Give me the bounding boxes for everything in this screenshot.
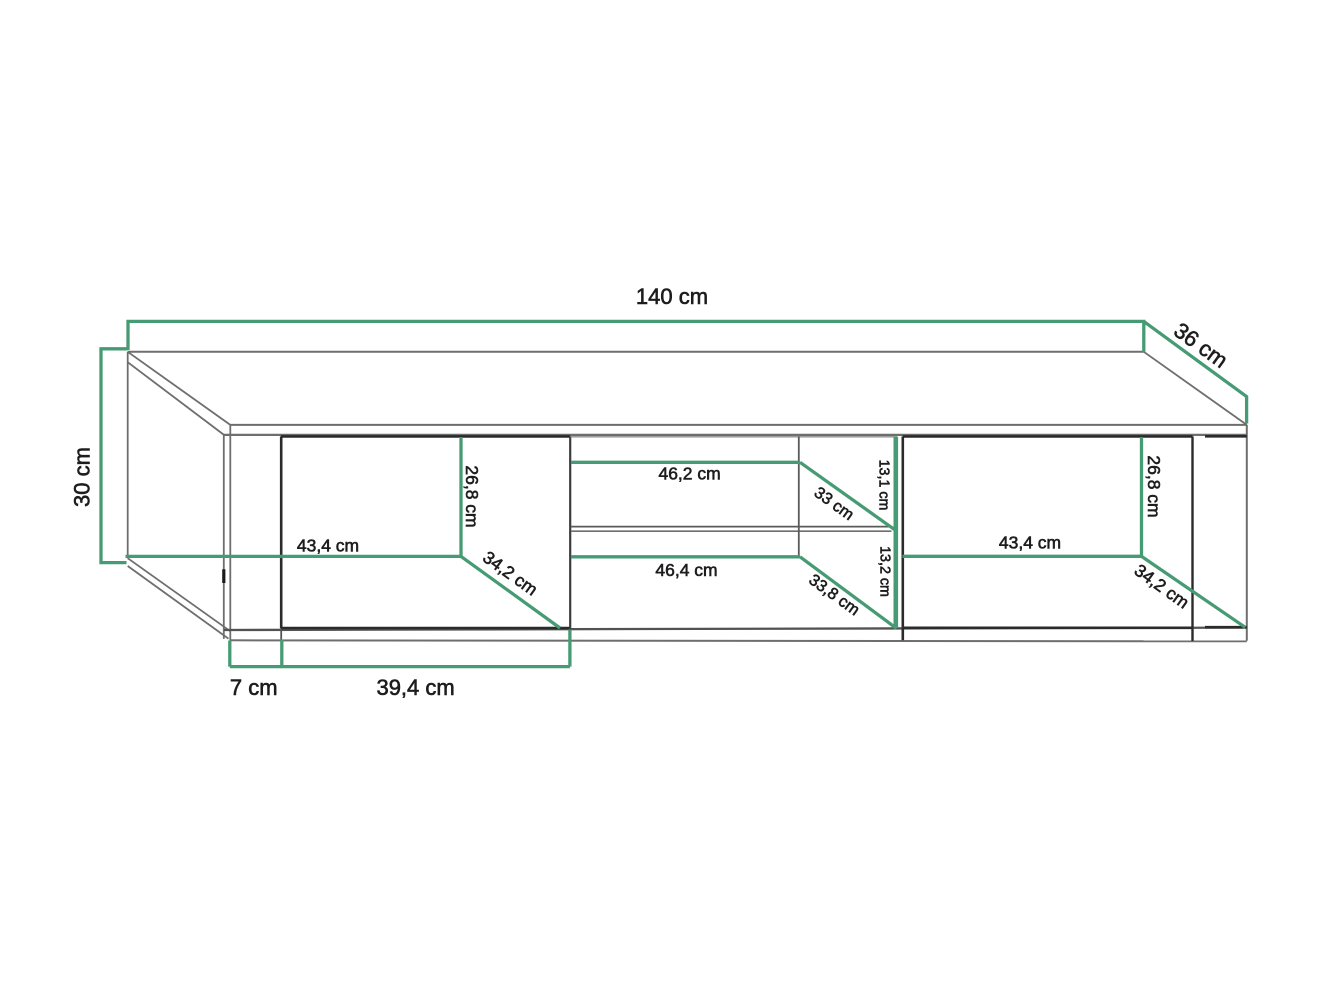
svg-text:46,4 cm: 46,4 cm: [655, 560, 717, 580]
svg-text:13,2 cm: 13,2 cm: [877, 546, 893, 597]
svg-text:43,4 cm: 43,4 cm: [297, 536, 359, 556]
svg-text:26,8 cm: 26,8 cm: [462, 465, 482, 527]
svg-text:39,4 cm: 39,4 cm: [376, 675, 454, 700]
svg-text:140 cm: 140 cm: [636, 284, 708, 309]
svg-text:30 cm: 30 cm: [70, 447, 95, 507]
svg-text:43,4 cm: 43,4 cm: [999, 532, 1061, 552]
svg-text:46,2 cm: 46,2 cm: [658, 464, 720, 484]
svg-text:26,8 cm: 26,8 cm: [1144, 455, 1164, 517]
svg-text:13,1 cm: 13,1 cm: [876, 460, 892, 511]
svg-text:7 cm: 7 cm: [230, 675, 278, 700]
